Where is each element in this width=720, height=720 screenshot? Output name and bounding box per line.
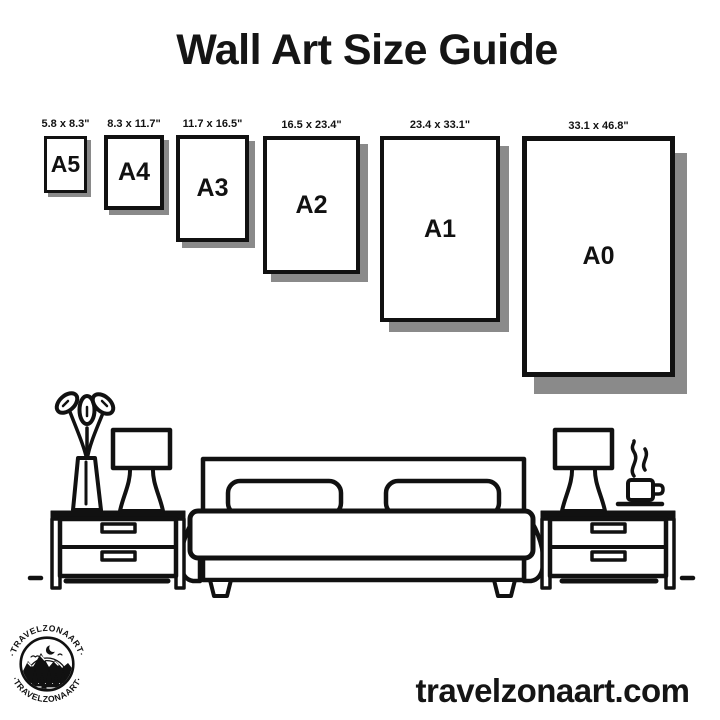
brand-logo: ·TRAVELZONAART· ·TRAVELZONAART· <box>7 623 87 704</box>
lamp-base <box>562 467 605 511</box>
coffee-cup-icon <box>618 441 663 504</box>
steam-icon <box>632 441 635 476</box>
bed-leg-right <box>494 580 515 596</box>
nightstand-right <box>541 511 675 588</box>
drawer-handle <box>592 552 625 560</box>
table-lamp-left <box>113 430 170 511</box>
nightstand-left <box>51 511 185 588</box>
table-lamp-right <box>555 430 612 511</box>
lamp-shade <box>113 430 170 468</box>
cup-body <box>628 480 653 500</box>
website-text: travelzonaart.com <box>400 672 705 710</box>
plant-vase-icon <box>53 389 117 510</box>
drawer-handle <box>102 552 135 560</box>
moon-crescent-cutout <box>49 644 57 652</box>
drawer-handle <box>102 524 135 532</box>
lamp-shade <box>555 430 612 468</box>
steam-icon <box>644 449 647 470</box>
bedroom-illustration: ·TRAVELZONAART· ·TRAVELZONAART· <box>0 0 720 720</box>
bed-leg-left <box>210 580 231 596</box>
lamp-base <box>120 467 163 511</box>
drawer-handle <box>592 524 625 532</box>
bed-icon <box>181 459 544 596</box>
mattress <box>190 511 533 558</box>
wall-art-size-guide-page: Wall Art Size Guide 5.8 x 8.3" A5 8.3 x … <box>0 0 720 720</box>
